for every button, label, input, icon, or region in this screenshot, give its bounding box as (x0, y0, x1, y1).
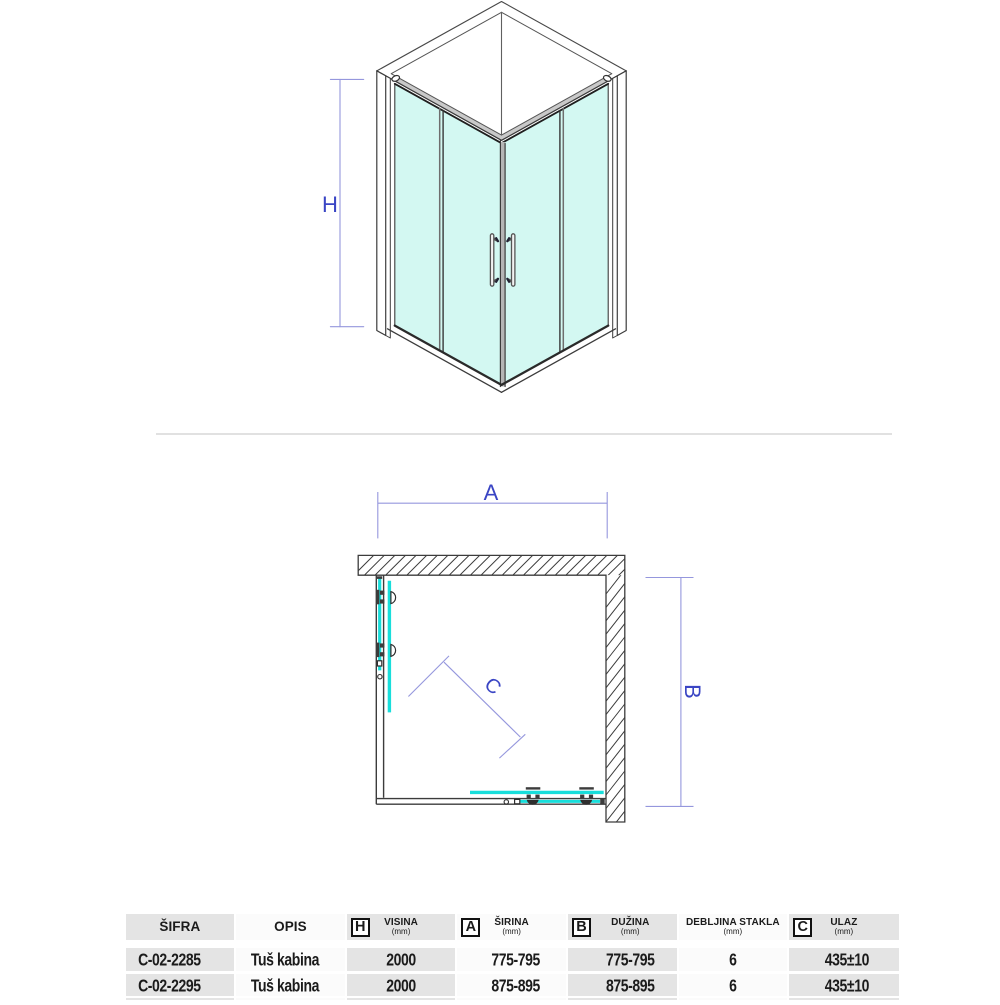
svg-text:B: B (680, 684, 705, 699)
svg-text:H: H (322, 192, 338, 217)
svg-text:A: A (484, 480, 499, 505)
svg-text:C: C (480, 673, 505, 699)
